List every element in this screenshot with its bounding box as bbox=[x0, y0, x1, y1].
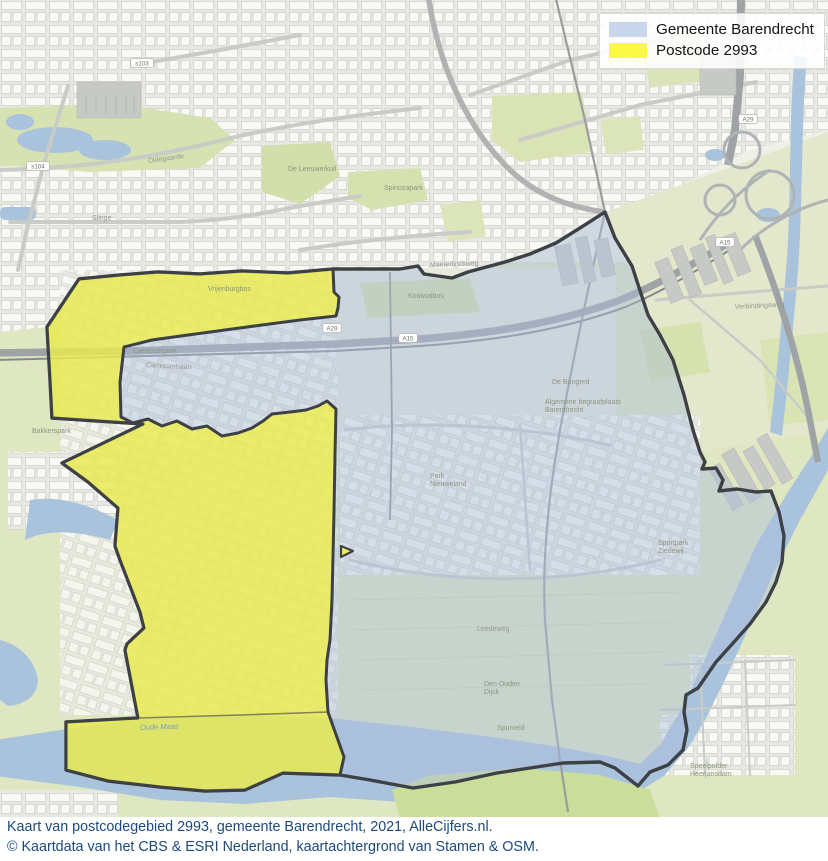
road-shield: A15 bbox=[716, 238, 735, 247]
svg-text:s104: s104 bbox=[31, 164, 45, 171]
postcode-swatch bbox=[609, 43, 647, 58]
map-label: Carnisserpark bbox=[133, 348, 177, 355]
attribution-line-2: © Kaartdata van het CBS & ESRI Nederland… bbox=[7, 838, 828, 858]
map-label: Speelpolder bbox=[690, 763, 728, 770]
legend-row-postcode: Postcode 2993 bbox=[609, 40, 814, 61]
map-label: Ziedewij bbox=[658, 548, 684, 555]
svg-text:s103: s103 bbox=[135, 61, 149, 68]
park-small-2 bbox=[440, 200, 486, 242]
map-label: Heerjansdam bbox=[690, 771, 732, 778]
park-small-1 bbox=[600, 116, 644, 154]
map-label: De Leeuwerkuil bbox=[288, 166, 337, 173]
road-shield: s104 bbox=[27, 162, 50, 171]
svg-text:A29: A29 bbox=[742, 117, 754, 124]
svg-text:A15: A15 bbox=[719, 240, 731, 247]
road-shield: A29 bbox=[323, 324, 342, 333]
map-label: Park bbox=[430, 473, 445, 480]
road-shield: s103 bbox=[131, 59, 154, 68]
map-label: Bakkerspark bbox=[32, 428, 71, 435]
municipality-swatch bbox=[609, 22, 647, 37]
map-legend: Gemeente Barendrecht Postcode 2993 bbox=[599, 13, 825, 69]
svg-text:A29: A29 bbox=[326, 326, 338, 333]
legend-row-municipality: Gemeente Barendrecht bbox=[609, 19, 814, 40]
map-label: Vrijenburgbos bbox=[208, 286, 251, 293]
map-label: Algemene begraafplaats bbox=[545, 399, 621, 406]
road-shield: A15 bbox=[399, 334, 418, 343]
map-label: Oude Maas bbox=[140, 722, 179, 732]
legend-label-postcode: Postcode 2993 bbox=[656, 42, 757, 59]
map-label: Spurveld bbox=[497, 725, 525, 732]
map-label: Barendrecht bbox=[545, 407, 583, 414]
map-view[interactable]: MaeterlinckwegOldegaardeSlingeCarnisserp… bbox=[0, 0, 828, 818]
map-label: De Bongerd bbox=[552, 379, 589, 386]
map-label: Den Ouden bbox=[484, 681, 520, 688]
svg-text:A15: A15 bbox=[402, 336, 414, 343]
map-label: Dijck bbox=[484, 689, 500, 696]
map-label: Slinge bbox=[92, 215, 112, 222]
legend-label-municipality: Gemeente Barendrecht bbox=[656, 21, 814, 38]
map-label: Kooiwalbos bbox=[408, 293, 444, 300]
attribution-line-1: Kaart van postcodegebied 2993, gemeente … bbox=[7, 818, 828, 838]
road-shield: A29 bbox=[739, 115, 758, 124]
urban-bottomleft bbox=[0, 790, 118, 818]
map-label: Sportpark bbox=[658, 540, 689, 547]
park-topcenter bbox=[492, 92, 592, 162]
map-label: Spinozapark bbox=[384, 185, 423, 192]
map-label: Leedeweg bbox=[477, 626, 509, 633]
map-label: Nieuweland bbox=[430, 481, 467, 488]
map-attribution: Kaart van postcodegebied 2993, gemeente … bbox=[0, 817, 828, 861]
map-canvas: MaeterlinckwegOldegaardeSlingeCarnisserp… bbox=[0, 0, 828, 818]
